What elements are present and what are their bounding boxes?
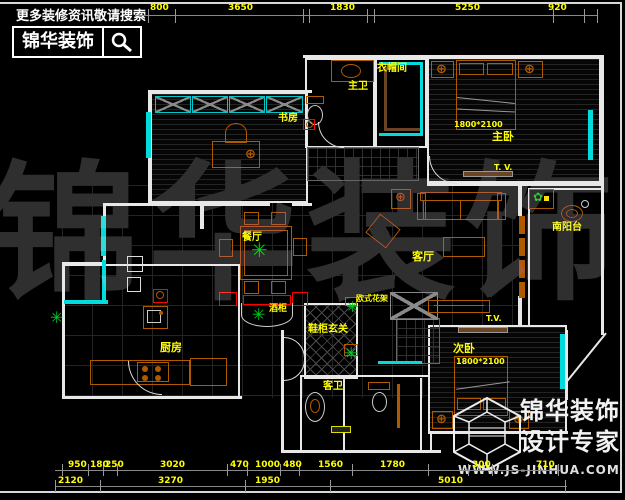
wash-basin: [341, 64, 361, 78]
table-lamp-icon: ⊕: [436, 63, 447, 76]
corridor-tiles: [396, 318, 440, 364]
dim-label: 1830: [330, 4, 355, 13]
tv-label-living: T.V.: [486, 315, 501, 323]
room-label-study: 书房: [278, 114, 298, 124]
wardrobe-rod: [384, 67, 387, 131]
appliance-circle: [156, 291, 164, 299]
tv-cabinet: [458, 327, 508, 333]
sofa-cushion-line: [460, 201, 461, 219]
dim-label: 5010: [438, 477, 463, 486]
room-label-balcony: 南阳台: [552, 223, 582, 233]
window: [588, 110, 593, 160]
shower-partition: [397, 384, 400, 428]
dim-tick: [558, 464, 559, 476]
dim-label: 1780: [380, 461, 405, 470]
ceiling-lamp-inner: [566, 209, 578, 218]
corridor-tiles: [307, 147, 419, 181]
flower-stand-label: 欧式花架: [356, 295, 388, 303]
dim-label: 3270: [158, 477, 183, 486]
toilet-tank: [368, 382, 390, 390]
dining-chair: [244, 281, 259, 294]
drain-circle: [306, 121, 313, 128]
brand-name: 锦华装饰: [14, 28, 102, 56]
wine-cabinet-unit: [219, 292, 237, 306]
dim-tick: [100, 480, 101, 492]
dim-label: 1000: [255, 461, 280, 470]
dim-tick: [55, 480, 56, 492]
table-lamp-icon: ⊕: [524, 63, 535, 76]
kitchen-cabinet: [190, 358, 227, 386]
dim-label: 1560: [318, 461, 343, 470]
dining-chair: [271, 281, 286, 294]
window: [146, 112, 151, 158]
plant-icon: ✳: [252, 307, 265, 323]
logo-tagline-text: 设计专家: [520, 430, 620, 454]
dim-label: 480: [283, 461, 302, 470]
dim-label: 710: [536, 461, 555, 470]
coffee-table: [443, 237, 485, 257]
plant-icon: ✳: [251, 240, 268, 260]
dining-chair: [293, 238, 307, 256]
wall-segment: [420, 378, 422, 450]
dining-chair: [271, 212, 286, 225]
bed-size-label: 1800*2100: [456, 358, 505, 366]
floor-lamp-icon: ⊕: [395, 191, 406, 204]
room-label-kitchen: 厨房: [160, 342, 182, 353]
wall-segment: [292, 203, 312, 206]
dim-tick: [374, 9, 375, 23]
wall-segment: [148, 203, 270, 206]
dim-tick: [352, 464, 353, 476]
dim-label: 470: [230, 461, 249, 470]
floorplan-canvas: 更多装修资讯敬请搜索 锦华装饰 800 3650 1830 5250 920: [0, 0, 625, 500]
desk-chair: [225, 123, 247, 143]
plant-icon: ✳: [50, 310, 63, 326]
frame-border-bottom: [0, 491, 622, 493]
room-label-closet: 衣帽间: [377, 64, 407, 74]
room-label-master-bedroom: 主卧: [492, 131, 514, 142]
glass-partition: [378, 361, 422, 364]
cabinet-unit: [155, 96, 191, 113]
dim-label: 3020: [160, 461, 185, 470]
pedestal-sink-inner: [310, 399, 320, 413]
dim-tick: [468, 464, 469, 476]
logo-brand-text: 锦华装饰: [520, 399, 620, 423]
dim-tick: [330, 480, 331, 492]
dim-tick: [280, 464, 281, 476]
sofa-armrest: [497, 193, 506, 220]
pillow: [459, 63, 484, 75]
faucet: [159, 311, 163, 315]
dim-tick: [303, 9, 304, 23]
dim-tick: [175, 9, 176, 23]
dim-tick: [227, 464, 228, 476]
room-label-dining: 餐厅: [242, 233, 262, 243]
wall-segment: [343, 375, 345, 452]
room-label-master-bath: 主卫: [348, 82, 368, 92]
pillow: [487, 63, 513, 75]
bath-mat: [331, 426, 351, 433]
tv-stand: [428, 300, 490, 313]
desk-lamp-icon: ⊕: [245, 148, 256, 161]
dim-tick: [367, 9, 368, 23]
wall-segment: [281, 378, 284, 452]
dim-tick: [245, 480, 246, 492]
dim-label: 1950: [255, 477, 280, 486]
room-label-entry: 鞋柜玄关: [308, 325, 348, 335]
cabinet-unit: [192, 96, 228, 113]
wardrobe-line: [379, 133, 423, 136]
dim-tick: [565, 480, 566, 492]
dim-label: 950: [68, 461, 87, 470]
wardrobe-rod: [384, 128, 420, 131]
wine-cabinet-unit: [292, 292, 308, 306]
column-box: [127, 277, 141, 292]
cabinet-unit: [266, 96, 303, 113]
light-point: [581, 200, 589, 208]
dim-tick: [62, 464, 63, 476]
frame-border-top: [0, 2, 620, 4]
window: [560, 334, 565, 389]
wardrobe-line: [420, 62, 423, 136]
wine-cabinet-label: 酒柜: [269, 305, 287, 314]
column-box: [127, 256, 143, 272]
toilet-tank: [306, 96, 324, 104]
frame-border-right: [620, 2, 622, 492]
room-label-guest-bath: 客卫: [323, 382, 343, 392]
dim-tick: [148, 9, 149, 23]
window: [101, 216, 106, 256]
dim-tick: [309, 9, 310, 23]
tv-label-master: T. V.: [494, 164, 512, 172]
search-icon: [102, 28, 140, 56]
dim-label: 2120: [58, 477, 83, 486]
dining-chair: [219, 239, 233, 257]
table-lamp-icon: ⊕: [436, 413, 447, 426]
dim-tick: [428, 464, 429, 476]
room-label-living: 客厅: [412, 251, 434, 262]
room-label-second-bedroom: 次卧: [453, 343, 475, 354]
balcony-sliding-door: [519, 216, 525, 298]
dim-label: 5250: [455, 4, 480, 13]
dim-label: 300: [472, 461, 491, 470]
cabinet-unit: [229, 96, 265, 113]
dim-label: 800: [150, 4, 169, 13]
toilet-bowl: [372, 392, 387, 412]
dim-label: 250: [105, 461, 124, 470]
sofa-armrest: [417, 193, 426, 220]
dim-tick: [584, 9, 585, 23]
wall-segment: [518, 186, 522, 216]
dimension-line: [55, 470, 560, 471]
brand-search-box: 锦华装饰: [12, 26, 142, 58]
dimension-line: [55, 486, 567, 487]
tv-stand-line: [434, 305, 484, 306]
window: [102, 260, 106, 304]
dim-tick: [492, 464, 493, 476]
dim-tick: [88, 464, 89, 476]
wall-segment: [103, 203, 151, 206]
sofa-seat: [423, 200, 499, 220]
search-hint-text: 更多装修资讯敬请搜索: [16, 5, 146, 24]
flower-dot: [544, 196, 549, 201]
dining-chair: [244, 212, 259, 225]
dimension-line: [135, 15, 597, 16]
dim-tick: [597, 9, 598, 23]
bed-size-label: 1800*2100: [454, 121, 503, 129]
dim-label: 3650: [228, 4, 253, 13]
plant-icon: ✳: [344, 346, 358, 363]
dim-label: 920: [548, 4, 567, 13]
flower-icon: ✿: [533, 191, 543, 203]
